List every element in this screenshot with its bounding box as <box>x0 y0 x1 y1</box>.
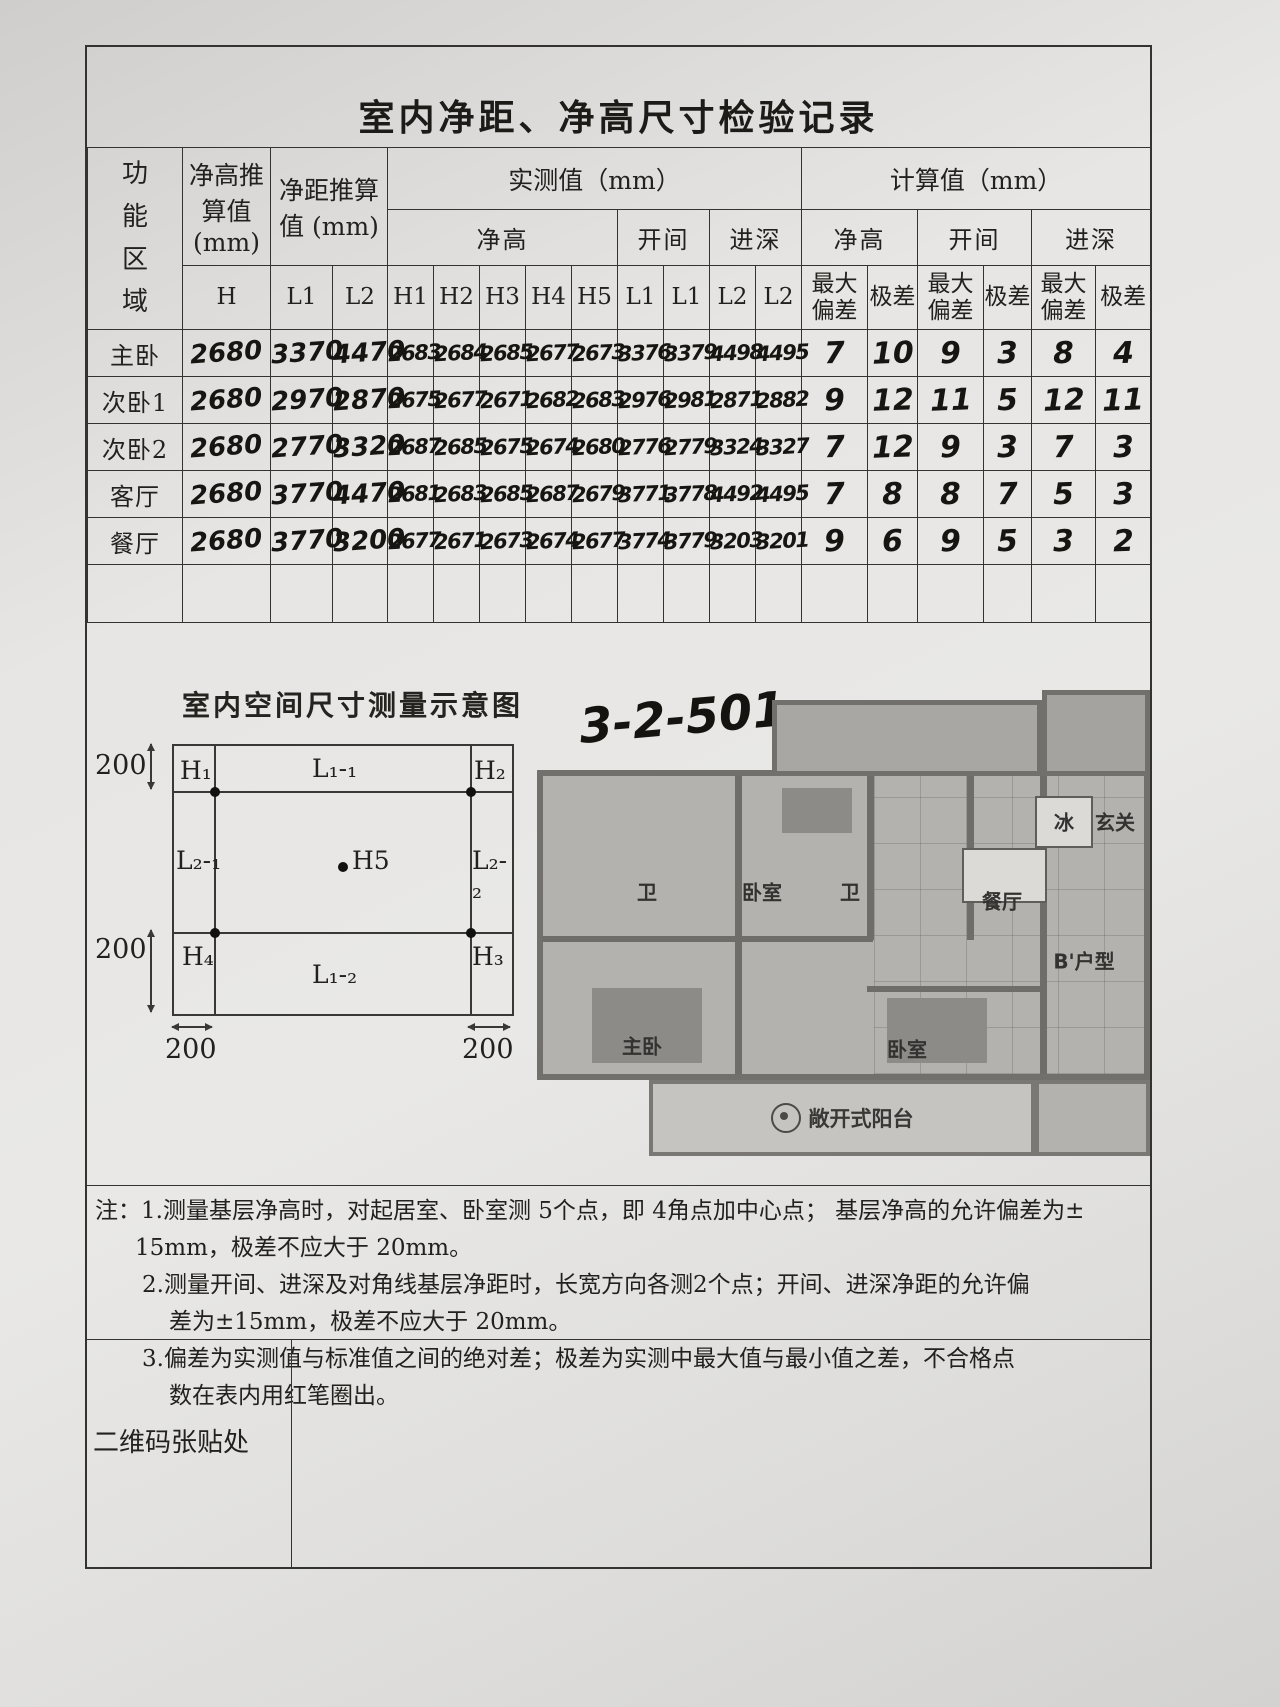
document-photo: 室内净距、净高尺寸检验记录 功能区域 净高推算值 (mm) 净距推算值 (mm)… <box>0 0 1280 1707</box>
col-head-H4: H4 <box>526 266 572 330</box>
measured-bay-subheader: 开间 <box>618 210 710 266</box>
col-head-H: H <box>183 266 271 330</box>
room-name-cell: 次卧2 <box>88 424 183 471</box>
handwritten-value: 11 <box>1102 382 1145 418</box>
point-h1-label: H₁ <box>180 756 212 785</box>
value-cell <box>480 565 526 623</box>
floorplan-bottom-right-block <box>1035 1080 1150 1156</box>
dim-line-top-left <box>150 744 152 789</box>
value-cell: 2677 <box>572 518 618 565</box>
value-cell: 9 <box>918 518 984 565</box>
dim-line-bottom-left <box>150 930 152 1012</box>
handwritten-value: 4495 <box>755 481 809 508</box>
middle-section: 室内空间尺寸测量示意图 H₁ H₂ H₃ H₄ H5 L₁-₁ L₁-₂ L₂-… <box>87 622 1150 1186</box>
handwritten-value: 9 <box>939 523 961 559</box>
value-cell: 2674 <box>526 424 572 471</box>
col-head-L1: L1 <box>271 266 333 330</box>
point-h5-dot <box>338 862 348 872</box>
value-cell: 3 <box>1032 518 1096 565</box>
handwritten-value: 4495 <box>755 340 809 367</box>
value-cell: 2673 <box>480 518 526 565</box>
value-cell: 2687 <box>526 471 572 518</box>
value-cell: 2680 <box>183 377 271 424</box>
handwritten-value: 11 <box>929 382 972 418</box>
value-cell: 10 <box>868 330 918 377</box>
dim-200-bottom-first: 200 <box>165 1034 217 1065</box>
col-head-H1: H1 <box>388 266 434 330</box>
value-cell: 2685 <box>480 330 526 377</box>
handwritten-value: 7 <box>1052 429 1074 465</box>
value-cell: 2677 <box>434 377 480 424</box>
edge-bottom-label: L₁-₂ <box>312 960 357 989</box>
floorplan-wall <box>735 776 742 1074</box>
col-head-L1b: L1 <box>664 266 710 330</box>
value-cell: 3774 <box>618 518 664 565</box>
handwritten-value: 5 <box>996 382 1018 418</box>
table-row: 餐厅26803770320026772671267326742677377437… <box>88 518 1151 565</box>
measured-depth-subheader: 进深 <box>710 210 802 266</box>
value-cell: 9 <box>802 518 868 565</box>
col-head-H2: H2 <box>434 266 480 330</box>
value-cell: 2671 <box>434 518 480 565</box>
value-cell: 2683 <box>572 377 618 424</box>
handwritten-value: 7 <box>823 476 845 512</box>
point-h4-dot <box>210 928 220 938</box>
value-cell: 3 <box>984 424 1032 471</box>
balcony-circle-icon <box>771 1103 801 1133</box>
measurement-rows: 主卧26803370447026832684268526772673337633… <box>88 330 1151 623</box>
value-cell: 6 <box>868 518 918 565</box>
dim-200-bottom-second: 200 <box>462 1034 514 1065</box>
handwritten-value: 12 <box>871 382 914 418</box>
value-cell <box>918 565 984 623</box>
inspection-form: 室内净距、净高尺寸检验记录 功能区域 净高推算值 (mm) 净距推算值 (mm)… <box>85 45 1152 1569</box>
qr-paste-label: 二维码张贴处 <box>93 1422 249 1459</box>
value-cell: 2770 <box>271 424 333 471</box>
table-row: 主卧26803370447026832684268526772673337633… <box>88 330 1151 377</box>
col-head-maxdev-bay: 最大偏差 <box>918 266 984 330</box>
handwritten-value: 2882 <box>755 387 809 414</box>
room-name-cell: 次卧1 <box>88 377 183 424</box>
value-cell <box>664 565 710 623</box>
value-cell: 3324 <box>710 424 756 471</box>
value-cell: 8 <box>1032 330 1096 377</box>
room-label-master: 主卧 <box>622 1031 662 1060</box>
unit-type-label: B'户型 <box>1053 946 1114 975</box>
point-h3-label: H₃ <box>472 942 504 971</box>
point-h2-label: H₂ <box>474 756 506 785</box>
room-label-balcony: 敞开式阳台 <box>809 1103 914 1133</box>
room-label-bedroom-top: 卧室 <box>742 877 782 906</box>
col-head-range-h: 极差 <box>868 266 918 330</box>
room-label-bedroom2: 卧室 <box>887 1034 927 1063</box>
value-cell: 2680 <box>183 471 271 518</box>
handwritten-value: 2 <box>1112 523 1134 559</box>
table-header: 功能区域 净高推算值 (mm) 净距推算值 (mm) 实测值（mm） 计算值（m… <box>88 148 1151 330</box>
handwritten-value: 9 <box>823 523 845 559</box>
handwritten-value: 2680 <box>189 524 263 559</box>
value-cell: 11 <box>918 377 984 424</box>
value-cell: 12 <box>868 424 918 471</box>
corner-header: 功能区域 <box>88 148 183 330</box>
floorplan-image: 3-2-501 卫 卧室 卫 冰 玄关 <box>537 688 1150 1160</box>
note-line-3: 2.测量开间、进深及对角线基层净距时，长宽方向各测2个点；开间、进深净距的允许偏 <box>142 1267 1150 1304</box>
measured-group-header: 实测值（mm） <box>388 148 802 210</box>
value-cell: 9 <box>918 330 984 377</box>
col-head-L2a: L2 <box>710 266 756 330</box>
unit-code-handwriting: 3-2-501 <box>577 681 788 755</box>
value-cell: 4495 <box>756 471 802 518</box>
value-cell <box>572 565 618 623</box>
value-cell <box>1096 565 1151 623</box>
handwritten-value: 2680 <box>189 336 263 371</box>
handwritten-value: 8 <box>1052 335 1074 371</box>
col-head-L2: L2 <box>333 266 388 330</box>
value-cell: 7 <box>802 424 868 471</box>
room-name-cell <box>88 565 183 623</box>
handwritten-value: 5 <box>996 523 1018 559</box>
value-cell <box>183 565 271 623</box>
measurement-table: 功能区域 净高推算值 (mm) 净距推算值 (mm) 实测值（mm） 计算值（m… <box>87 147 1151 623</box>
handwritten-value: 3 <box>1052 523 1074 559</box>
room-label-dining: 餐厅 <box>982 886 1022 915</box>
value-cell: 2685 <box>434 424 480 471</box>
handwritten-value: 4 <box>1112 335 1134 371</box>
floorplan-kitchen-block <box>1042 690 1150 776</box>
value-cell <box>434 565 480 623</box>
value-cell: 3370 <box>271 330 333 377</box>
value-cell: 2673 <box>572 330 618 377</box>
value-cell: 2981 <box>664 377 710 424</box>
room-label-fridge: 冰 <box>1054 807 1074 836</box>
handwritten-value: 9 <box>823 382 845 418</box>
dim-200-bottom-left: 200 <box>95 934 147 965</box>
value-cell <box>618 565 664 623</box>
handwritten-value: 9 <box>939 335 961 371</box>
value-cell: 2675 <box>480 424 526 471</box>
table-row: 次卧12680297028702675267726712682268329762… <box>88 377 1151 424</box>
col-head-L2b: L2 <box>756 266 802 330</box>
calc-height-subheader: 净高 <box>802 210 918 266</box>
value-cell <box>333 565 388 623</box>
value-cell: 2680 <box>183 330 271 377</box>
qr-paste-cell: 二维码张贴处 <box>87 1340 292 1568</box>
value-cell: 7 <box>802 471 868 518</box>
handwritten-value: 6 <box>881 523 903 559</box>
calc-bay-subheader: 开间 <box>918 210 1032 266</box>
value-cell: 3379 <box>664 330 710 377</box>
floorplan-top-block <box>772 700 1042 776</box>
point-h4-label: H₄ <box>182 942 214 971</box>
value-cell: 2679 <box>572 471 618 518</box>
handwritten-value: 12 <box>1042 382 1085 418</box>
value-cell: 4498 <box>710 330 756 377</box>
value-cell: 5 <box>1032 471 1096 518</box>
col-head-range-depth: 极差 <box>1096 266 1151 330</box>
room-label-bath1: 卫 <box>637 877 657 906</box>
value-cell <box>868 565 918 623</box>
value-cell: 7 <box>1032 424 1096 471</box>
table-row: 次卧22680277033202687268526752674268027762… <box>88 424 1151 471</box>
value-cell: 2677 <box>526 330 572 377</box>
value-cell: 2685 <box>480 471 526 518</box>
value-cell: 3 <box>1096 471 1151 518</box>
value-cell: 3779 <box>664 518 710 565</box>
qr-section: 二维码张贴处 <box>87 1339 1150 1568</box>
point-h3-dot <box>466 928 476 938</box>
handwritten-value: 10 <box>871 335 914 371</box>
height-std-header: 净高推算值 (mm) <box>183 148 271 266</box>
value-cell: 2970 <box>271 377 333 424</box>
value-cell: 3327 <box>756 424 802 471</box>
value-cell: 2684 <box>434 330 480 377</box>
edge-left-label: L₂-₁ <box>176 846 221 875</box>
value-cell: 9 <box>918 424 984 471</box>
col-head-L1a: L1 <box>618 266 664 330</box>
handwritten-value: 3327 <box>755 434 809 461</box>
value-cell: 3771 <box>618 471 664 518</box>
notes: 注：1.测量基层净高时，对起居室、卧室测 5个点，即 4角点加中心点； 基层净高… <box>87 1185 1150 1339</box>
handwritten-value: 2680 <box>189 477 263 512</box>
room-name-cell: 餐厅 <box>88 518 183 565</box>
value-cell: 4 <box>1096 330 1151 377</box>
value-cell: 3376 <box>618 330 664 377</box>
measured-height-subheader: 净高 <box>388 210 618 266</box>
value-cell: 8 <box>868 471 918 518</box>
value-cell <box>984 565 1032 623</box>
handwritten-value: 3 <box>996 429 1018 465</box>
room-label-bath2: 卫 <box>840 877 860 906</box>
handwritten-value: 8 <box>939 476 961 512</box>
handwritten-value: 8 <box>881 476 903 512</box>
handwritten-value: 5 <box>1052 476 1074 512</box>
value-cell: 2882 <box>756 377 802 424</box>
value-cell: 3 <box>1096 424 1151 471</box>
calculated-group-header: 计算值（mm） <box>802 148 1151 210</box>
handwritten-value: 7 <box>823 429 845 465</box>
diagram-bottom-measure-line <box>174 932 512 934</box>
bed-bedroom-top <box>782 788 852 833</box>
col-head-maxdev-h: 最大偏差 <box>802 266 868 330</box>
value-cell <box>271 565 333 623</box>
value-cell: 9 <box>802 377 868 424</box>
calc-depth-subheader: 进深 <box>1032 210 1151 266</box>
point-h2-dot <box>466 787 476 797</box>
value-cell: 5 <box>984 518 1032 565</box>
handwritten-value: 3 <box>1112 429 1134 465</box>
value-cell: 3203 <box>710 518 756 565</box>
value-cell <box>388 565 434 623</box>
col-head-H5: H5 <box>572 266 618 330</box>
value-cell <box>802 565 868 623</box>
handwritten-value: 2680 <box>189 430 263 465</box>
value-cell: 2680 <box>183 424 271 471</box>
value-cell: 3770 <box>271 471 333 518</box>
handwritten-value: 3 <box>996 335 1018 371</box>
value-cell: 2680 <box>183 518 271 565</box>
floorplan-wall <box>867 986 1047 992</box>
value-cell: 5 <box>984 377 1032 424</box>
measurement-diagram: H₁ H₂ H₃ H₄ H5 L₁-₁ L₁-₂ L₂-₁ L₂-₂ <box>172 744 514 1016</box>
col-head-maxdev-depth: 最大偏差 <box>1032 266 1096 330</box>
point-h1-dot <box>210 787 220 797</box>
value-cell: 8 <box>918 471 984 518</box>
handwritten-value: 3201 <box>755 528 809 555</box>
value-cell: 4492 <box>710 471 756 518</box>
value-cell: 3201 <box>756 518 802 565</box>
value-cell: 7 <box>984 471 1032 518</box>
value-cell: 2779 <box>664 424 710 471</box>
value-cell: 2683 <box>434 471 480 518</box>
handwritten-value: 2680 <box>189 383 263 418</box>
handwritten-value: 12 <box>871 429 914 465</box>
handwritten-value: 3 <box>1112 476 1134 512</box>
value-cell: 2976 <box>618 377 664 424</box>
value-cell <box>526 565 572 623</box>
note-line-1: 注：1.测量基层净高时，对起居室、卧室测 5个点，即 4角点加中心点； 基层净高… <box>95 1193 1150 1230</box>
value-cell: 7 <box>802 330 868 377</box>
value-cell: 3770 <box>271 518 333 565</box>
point-h5-label: H5 <box>352 846 390 875</box>
value-cell: 2 <box>1096 518 1151 565</box>
value-cell <box>710 565 756 623</box>
dim-line-bottom-first <box>172 1026 212 1028</box>
floorplan-balcony: 敞开式阳台 <box>649 1080 1035 1156</box>
edge-right-label: L₂-₂ <box>472 846 512 904</box>
dim-200-top-left: 200 <box>95 750 147 781</box>
note-line-4: 差为±15mm，极差不应大于 20mm。 <box>169 1304 1150 1341</box>
col-head-H3: H3 <box>480 266 526 330</box>
value-cell: 3778 <box>664 471 710 518</box>
col-head-range-bay: 极差 <box>984 266 1032 330</box>
handwritten-value: 9 <box>939 429 961 465</box>
function-area-label: 功能区域 <box>120 153 150 325</box>
diagram-top-measure-line <box>174 791 512 793</box>
edge-top-label: L₁-₁ <box>312 754 357 783</box>
value-cell: 12 <box>868 377 918 424</box>
distance-std-header: 净距推算值 (mm) <box>271 148 388 266</box>
value-cell: 2871 <box>710 377 756 424</box>
room-name-cell: 主卧 <box>88 330 183 377</box>
value-cell: 2680 <box>572 424 618 471</box>
floorplan-wall <box>867 776 874 940</box>
value-cell: 11 <box>1096 377 1151 424</box>
value-cell: 2674 <box>526 518 572 565</box>
value-cell: 2682 <box>526 377 572 424</box>
table-row: 客厅26803770447026812683268526872679377137… <box>88 471 1151 518</box>
room-name-cell: 客厅 <box>88 471 183 518</box>
value-cell: 2671 <box>480 377 526 424</box>
note-line-2: 15mm，极差不应大于 20mm。 <box>135 1230 1150 1267</box>
form-title: 室内净距、净高尺寸检验记录 <box>87 89 1150 141</box>
handwritten-value: 7 <box>823 335 845 371</box>
value-cell: 4495 <box>756 330 802 377</box>
dim-line-bottom-second <box>468 1026 510 1028</box>
handwritten-value: 7 <box>996 476 1018 512</box>
table-row <box>88 565 1151 623</box>
value-cell: 2776 <box>618 424 664 471</box>
value-cell <box>1032 565 1096 623</box>
value-cell <box>756 565 802 623</box>
floorplan-wall <box>543 936 873 942</box>
value-cell: 12 <box>1032 377 1096 424</box>
room-label-entry: 玄关 <box>1095 807 1135 836</box>
value-cell: 3 <box>984 330 1032 377</box>
